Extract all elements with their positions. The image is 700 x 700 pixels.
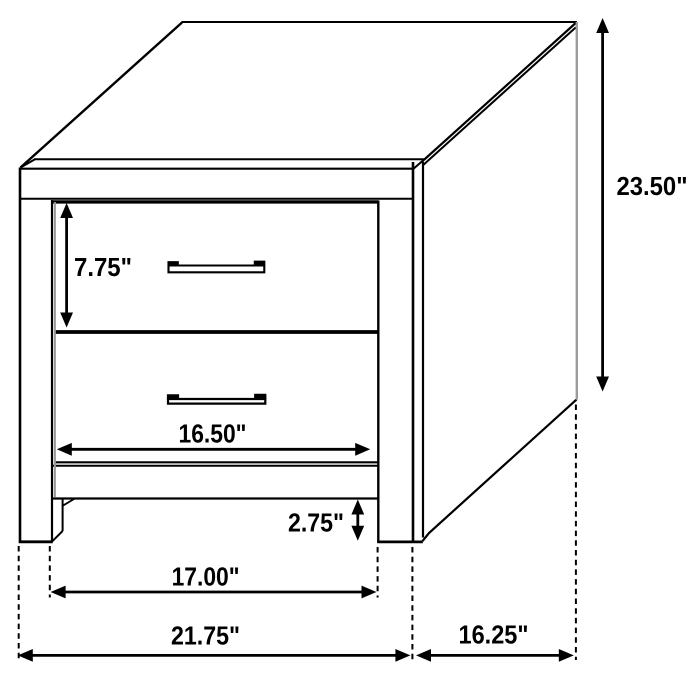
svg-text:7.75": 7.75" — [74, 254, 132, 282]
svg-text:16.50": 16.50" — [179, 421, 247, 449]
svg-text:16.25": 16.25" — [459, 622, 529, 650]
svg-text:23.50": 23.50" — [617, 173, 688, 201]
svg-text:17.00": 17.00" — [172, 563, 240, 591]
svg-text:21.75": 21.75" — [171, 622, 240, 650]
svg-text:2.75": 2.75" — [288, 510, 344, 538]
